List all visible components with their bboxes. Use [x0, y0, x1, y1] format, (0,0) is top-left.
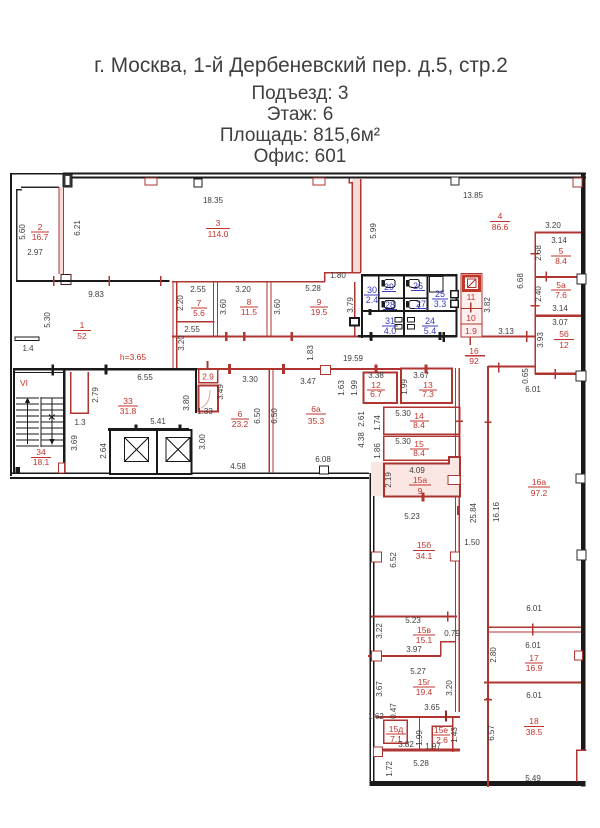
svg-text:4.09: 4.09 [409, 466, 425, 475]
svg-text:1.9: 1.9 [465, 326, 477, 336]
svg-text:1.62: 1.62 [368, 712, 384, 721]
svg-text:6.55: 6.55 [137, 373, 153, 382]
svg-text:2.64: 2.64 [99, 443, 108, 459]
svg-text:6.21: 6.21 [73, 220, 82, 236]
svg-text:1.63: 1.63 [337, 380, 346, 396]
svg-text:27: 27 [416, 299, 426, 309]
svg-text:0.47: 0.47 [389, 703, 398, 719]
svg-text:18.35: 18.35 [203, 196, 224, 205]
svg-text:1.86: 1.86 [373, 443, 382, 459]
svg-text:16.7: 16.7 [32, 232, 49, 242]
svg-text:31.8: 31.8 [120, 406, 137, 416]
svg-text:1.74: 1.74 [373, 415, 382, 431]
svg-text:0.79: 0.79 [444, 629, 460, 638]
svg-text:15д: 15д [389, 724, 403, 734]
svg-text:15в: 15в [417, 625, 431, 635]
svg-text:1.99: 1.99 [350, 380, 359, 396]
svg-text:34.1: 34.1 [416, 551, 433, 561]
svg-text:Площадь: 815,6м²: Площадь: 815,6м² [220, 125, 380, 146]
svg-text:2.19: 2.19 [384, 472, 393, 488]
svg-text:6.50: 6.50 [270, 408, 279, 424]
svg-text:3.13: 3.13 [498, 327, 514, 336]
svg-text:1.3: 1.3 [74, 418, 86, 427]
svg-text:1.83: 1.83 [306, 345, 315, 361]
svg-text:5.4: 5.4 [424, 326, 437, 336]
svg-text:2.79: 2.79 [91, 387, 100, 403]
svg-text:15г: 15г [418, 677, 431, 687]
svg-text:6.01: 6.01 [525, 385, 541, 394]
svg-text:16: 16 [469, 346, 479, 356]
svg-text:3.67: 3.67 [413, 371, 429, 380]
svg-text:VI: VI [20, 378, 28, 388]
svg-text:5.99: 5.99 [369, 223, 378, 239]
svg-text:5.30: 5.30 [395, 409, 411, 418]
svg-text:15е: 15е [434, 725, 448, 735]
svg-text:3.80: 3.80 [182, 395, 191, 411]
svg-text:3.14: 3.14 [551, 236, 567, 245]
svg-text:114.0: 114.0 [208, 229, 229, 239]
svg-text:24: 24 [425, 316, 435, 326]
svg-text:34: 34 [36, 447, 46, 457]
svg-text:2.61: 2.61 [357, 411, 366, 427]
svg-text:Этаж: 6: Этаж: 6 [267, 104, 334, 125]
svg-text:8: 8 [247, 297, 252, 307]
svg-text:1.99: 1.99 [415, 730, 424, 746]
svg-text:18.1: 18.1 [33, 457, 50, 467]
svg-text:16.9: 16.9 [526, 663, 543, 673]
svg-text:5.23: 5.23 [405, 616, 421, 625]
svg-text:86.6: 86.6 [492, 222, 509, 232]
svg-text:5.30: 5.30 [43, 312, 52, 328]
svg-text:19.5: 19.5 [311, 307, 328, 317]
svg-text:2.97: 2.97 [27, 248, 43, 257]
svg-text:2: 2 [38, 222, 43, 232]
svg-text:8.4: 8.4 [413, 448, 425, 458]
svg-text:2.4: 2.4 [366, 295, 379, 305]
svg-text:1.80: 1.80 [330, 271, 346, 280]
svg-text:5.41: 5.41 [150, 417, 166, 426]
svg-text:3.93: 3.93 [536, 332, 545, 348]
svg-text:5б: 5б [559, 329, 569, 339]
svg-text:3.65: 3.65 [424, 703, 440, 712]
svg-text:3.20: 3.20 [445, 680, 454, 696]
svg-text:17: 17 [529, 653, 539, 663]
svg-text:6.50: 6.50 [253, 408, 262, 424]
svg-text:5.23: 5.23 [404, 512, 420, 521]
svg-text:3.3: 3.3 [434, 299, 447, 309]
svg-text:3.30: 3.30 [242, 375, 258, 384]
svg-text:1.97: 1.97 [425, 742, 441, 751]
svg-text:9: 9 [418, 486, 423, 496]
svg-text:6.08: 6.08 [315, 455, 331, 464]
svg-text:15а: 15а [413, 475, 427, 485]
svg-text:6.68: 6.68 [516, 273, 525, 289]
svg-text:35.3: 35.3 [308, 416, 325, 426]
svg-text:3.38: 3.38 [368, 371, 384, 380]
svg-text:3.22: 3.22 [375, 623, 384, 639]
svg-text:6.57: 6.57 [487, 725, 496, 741]
svg-text:1.4: 1.4 [22, 344, 34, 353]
svg-text:16.16: 16.16 [492, 501, 501, 522]
svg-text:8.4: 8.4 [413, 420, 425, 430]
svg-text:1.99: 1.99 [400, 379, 409, 395]
svg-text:5.30: 5.30 [395, 437, 411, 446]
svg-text:10: 10 [466, 313, 476, 323]
svg-text:3.20: 3.20 [545, 221, 561, 230]
svg-text:9: 9 [317, 297, 322, 307]
svg-text:1.33: 1.33 [197, 407, 213, 416]
svg-text:3.47: 3.47 [300, 377, 316, 386]
svg-text:3.49: 3.49 [216, 384, 225, 400]
svg-text:4.58: 4.58 [230, 462, 246, 471]
svg-text:7.3: 7.3 [422, 389, 434, 399]
svg-text:h=3.65: h=3.65 [120, 352, 147, 362]
svg-text:25: 25 [435, 289, 445, 299]
svg-text:5: 5 [559, 246, 564, 256]
svg-text:3: 3 [216, 218, 221, 228]
svg-text:6а: 6а [311, 404, 321, 414]
svg-text:3.82: 3.82 [398, 740, 414, 749]
svg-text:15б: 15б [417, 540, 431, 550]
svg-text:1.72: 1.72 [385, 761, 394, 777]
svg-text:3.20: 3.20 [235, 285, 251, 294]
svg-text:6: 6 [238, 409, 243, 419]
svg-text:2.80: 2.80 [489, 647, 498, 663]
svg-text:30: 30 [367, 285, 377, 295]
svg-text:6.01: 6.01 [526, 604, 542, 613]
svg-text:5.28: 5.28 [413, 759, 429, 768]
svg-text:2.55: 2.55 [184, 325, 200, 334]
svg-text:3.67: 3.67 [375, 681, 384, 697]
svg-text:28: 28 [385, 300, 395, 310]
svg-text:7.6: 7.6 [555, 290, 567, 300]
svg-text:52: 52 [77, 331, 87, 341]
svg-text:13.85: 13.85 [463, 191, 484, 200]
svg-text:8.4: 8.4 [555, 256, 567, 266]
svg-text:33: 33 [123, 396, 133, 406]
svg-text:5.6: 5.6 [193, 308, 205, 318]
svg-text:2.9: 2.9 [202, 372, 214, 382]
svg-text:6.01: 6.01 [525, 641, 541, 650]
svg-text:3.79: 3.79 [346, 297, 355, 313]
svg-text:2.40: 2.40 [534, 286, 543, 302]
svg-text:1.50: 1.50 [464, 538, 480, 547]
svg-text:97.2: 97.2 [531, 488, 548, 498]
svg-text:г. Москва, 1-й Дербеневский пе: г. Москва, 1-й Дербеневский пер. д.5, ст… [94, 54, 508, 77]
svg-text:11.5: 11.5 [241, 307, 257, 317]
svg-text:16а: 16а [532, 477, 546, 487]
svg-text:19.59: 19.59 [343, 354, 364, 363]
svg-text:5.27: 5.27 [410, 667, 426, 676]
svg-text:7: 7 [197, 298, 202, 308]
svg-text:5.49: 5.49 [525, 774, 541, 783]
svg-text:0.65: 0.65 [521, 368, 530, 384]
svg-text:Офис: 601: Офис: 601 [254, 146, 347, 167]
svg-text:3.60: 3.60 [219, 299, 228, 315]
svg-text:3.00: 3.00 [198, 434, 207, 450]
svg-text:3.14: 3.14 [552, 304, 568, 313]
svg-text:4: 4 [498, 211, 503, 221]
svg-text:3.20: 3.20 [177, 335, 186, 351]
svg-text:29: 29 [384, 282, 394, 292]
svg-text:5.60: 5.60 [18, 224, 27, 240]
svg-text:26: 26 [413, 281, 423, 291]
svg-text:6.52: 6.52 [389, 552, 398, 568]
svg-text:15.1: 15.1 [416, 635, 433, 645]
svg-text:2.68: 2.68 [534, 245, 543, 261]
svg-text:5.28: 5.28 [305, 284, 321, 293]
svg-text:Подъезд: 3: Подъезд: 3 [251, 83, 348, 104]
svg-text:6.01: 6.01 [526, 691, 542, 700]
svg-text:6.7: 6.7 [370, 389, 382, 399]
svg-text:25.84: 25.84 [469, 502, 478, 523]
svg-text:38.5: 38.5 [526, 727, 543, 737]
svg-text:11: 11 [467, 292, 476, 302]
svg-text:9.83: 9.83 [88, 290, 104, 299]
svg-text:3.69: 3.69 [70, 435, 79, 451]
svg-text:23.2: 23.2 [232, 419, 249, 429]
svg-text:3.60: 3.60 [273, 299, 282, 315]
svg-text:1.43: 1.43 [450, 727, 459, 743]
svg-text:18: 18 [529, 716, 539, 726]
svg-text:19.4: 19.4 [416, 687, 433, 697]
svg-text:3.07: 3.07 [552, 318, 568, 327]
svg-text:12: 12 [559, 340, 569, 350]
svg-text:2.55: 2.55 [190, 285, 206, 294]
svg-text:92: 92 [469, 356, 479, 366]
svg-text:5а: 5а [556, 280, 566, 290]
svg-text:31: 31 [385, 316, 395, 326]
svg-text:2.20: 2.20 [176, 295, 185, 311]
svg-text:4.0: 4.0 [384, 326, 397, 336]
svg-text:3.82: 3.82 [483, 297, 492, 313]
svg-text:1: 1 [80, 320, 85, 330]
svg-text:4.38: 4.38 [357, 432, 366, 448]
svg-text:3.97: 3.97 [406, 645, 422, 654]
